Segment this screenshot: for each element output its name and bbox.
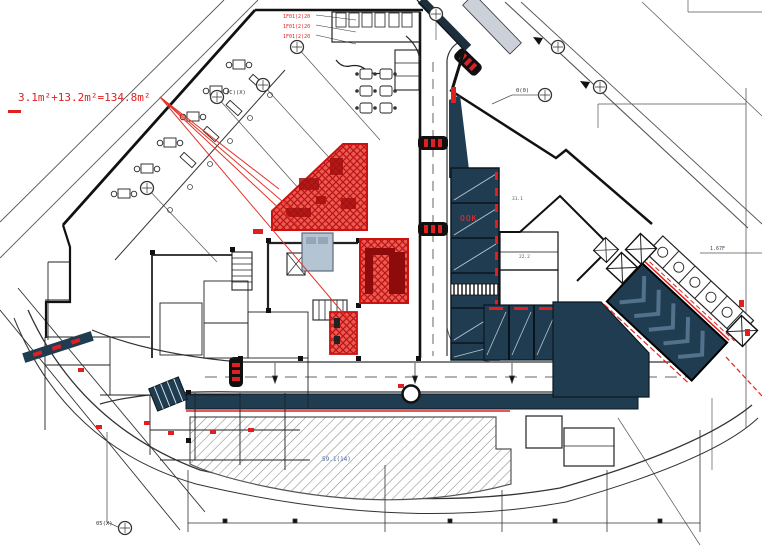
navy-stalls [484, 305, 558, 360]
grid-bubble-label: 0(0) [516, 88, 529, 94]
road-column [403, 386, 420, 403]
red-note-text: 1F01(2)20 [283, 34, 310, 40]
plaza-label: 59.1(14) [322, 456, 351, 463]
car-icon [229, 357, 243, 387]
car-icon [418, 136, 448, 150]
area-annotation-text: 3.1m²+13.2m²=134.8m² [18, 91, 150, 104]
dim-text: 31.1 [512, 196, 523, 202]
car-icon [418, 222, 448, 236]
grid-bubble-label: (C)(X) [226, 90, 246, 96]
red-note-text: 1F01(2)20 [283, 14, 310, 20]
dim-text: 22.2 [519, 254, 530, 260]
floor-plan-canvas: 59.1(14) [0, 0, 762, 551]
grid-bubble-label: 05(X) [96, 521, 113, 527]
highlight-room-small[interactable] [330, 312, 357, 354]
escalator-label: OOK [460, 214, 477, 223]
red-note-text: 1F01(2)20 [283, 24, 310, 30]
level-text: 1.67F [710, 246, 725, 252]
highlight-room-right[interactable] [360, 239, 408, 303]
gray-blue-room [302, 233, 333, 271]
